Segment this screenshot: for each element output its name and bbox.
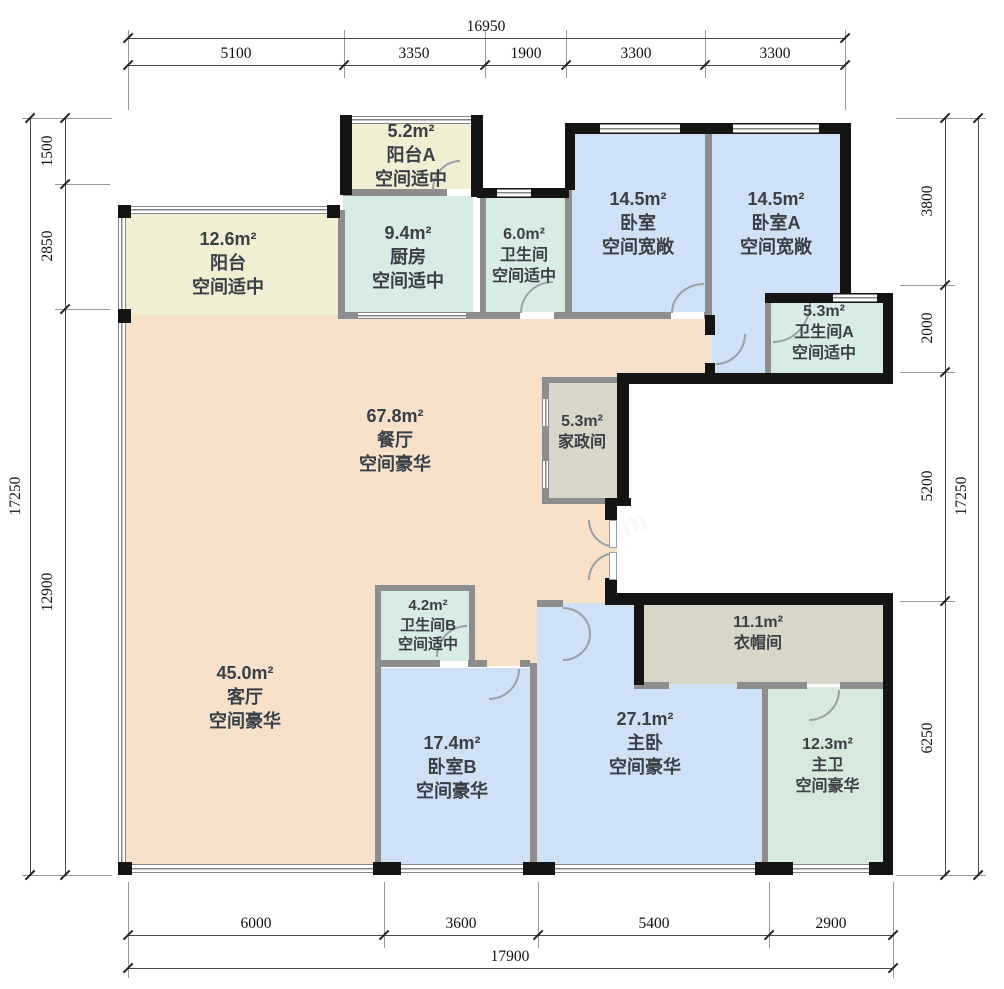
dim-segment: 2000 <box>919 296 937 360</box>
dim-segment: 3300 <box>743 45 807 63</box>
dim-segment: 3600 <box>429 915 493 933</box>
dimension-line <box>65 118 66 875</box>
room-name: 客厅 <box>165 686 325 710</box>
wall-segment <box>375 585 475 591</box>
room-label-kitchen: 9.4m² 厨房 空间适中 <box>338 222 478 293</box>
extension-line <box>384 882 385 948</box>
room-area: 5.3m² <box>532 412 632 433</box>
door-opening <box>520 312 554 319</box>
wall-segment <box>375 660 440 667</box>
dimension-line <box>30 118 31 875</box>
room-desc: 空间适中 <box>368 635 488 655</box>
room-area: 12.3m² <box>760 735 895 756</box>
dim-segment: 3800 <box>919 169 937 233</box>
dim-segment: 5400 <box>622 915 686 933</box>
extension-line <box>845 30 846 110</box>
window <box>131 206 327 214</box>
dim-total-bottom: 17900 <box>478 948 542 966</box>
room-desc: 空间豪华 <box>315 453 475 477</box>
room-area: 5.2m² <box>340 120 482 144</box>
room-area: 4.2m² <box>368 596 488 616</box>
wall-post <box>869 862 893 875</box>
room-label-bedroom-b: 17.4m² 卧室B 空间豪华 <box>382 732 522 803</box>
room-label-balcony-a: 5.2m² 阳台A 空间适中 <box>340 120 482 191</box>
wall-segment <box>605 578 617 605</box>
room-name: 餐厅 <box>315 429 475 453</box>
extension-line <box>769 882 770 948</box>
window <box>118 218 126 309</box>
room-label-living: 45.0m² 客厅 空间豪华 <box>165 662 325 733</box>
window <box>542 461 549 488</box>
room-label-balcony: 12.6m² 阳台 空间适中 <box>128 228 328 299</box>
wall-segment <box>705 363 715 377</box>
room-desc: 空间豪华 <box>760 777 895 798</box>
wall-segment <box>468 660 487 667</box>
wall-post <box>755 862 793 875</box>
room-name: 卫生间A <box>764 323 884 344</box>
room-desc: 空间宽敞 <box>706 236 846 260</box>
room-label-housekeeping: 5.3m² 家政间 <box>532 412 632 454</box>
wall-segment <box>840 682 883 689</box>
door-opening <box>671 312 704 319</box>
room-label-cloakroom: 11.1m² 衣帽间 <box>698 613 818 655</box>
window <box>497 189 531 197</box>
wall-post <box>118 862 132 875</box>
room-label-bedroom-a: 14.5m² 卧室A 空间宽敞 <box>706 188 846 259</box>
wall-segment <box>542 377 622 383</box>
window <box>600 124 680 133</box>
room-name: 卧室 <box>568 212 708 236</box>
entry-door-leaf <box>609 552 617 580</box>
dim-total-right: 17250 <box>953 464 971 528</box>
dimension-line <box>128 38 845 39</box>
dimension-line <box>128 935 893 936</box>
room-area: 11.1m² <box>698 613 818 634</box>
extension-line <box>900 372 955 373</box>
dim-segment: 5200 <box>919 454 937 518</box>
room-desc: 空间宽敞 <box>568 236 708 260</box>
wall-segment <box>530 663 537 868</box>
room-label-master-bathroom: 12.3m² 主卫 空间豪华 <box>760 735 895 797</box>
room-name: 卧室A <box>706 212 846 236</box>
room-name: 阳台 <box>128 252 328 276</box>
wall-segment <box>883 293 893 383</box>
window <box>733 124 819 133</box>
extension-line <box>893 882 894 978</box>
room-label-bedroom: 14.5m² 卧室 空间宽敞 <box>568 188 708 259</box>
room-name: 卫生间B <box>368 616 488 636</box>
room-label-dining: 67.8m² 餐厅 空间豪华 <box>315 405 475 476</box>
dim-segment: 2900 <box>799 915 863 933</box>
sliding-door <box>358 312 466 319</box>
dimension-line <box>945 118 946 875</box>
dim-segment: 1900 <box>494 45 558 63</box>
extension-line <box>22 875 112 876</box>
wall-post <box>118 309 131 323</box>
wall-post <box>523 862 555 875</box>
window <box>132 864 373 873</box>
wall-post <box>118 205 131 218</box>
extension-line <box>900 285 955 286</box>
window <box>118 323 126 862</box>
wall-segment <box>537 600 563 607</box>
dim-total-top: 16950 <box>454 18 518 36</box>
dimension-line <box>128 968 893 969</box>
room-label-bathroom-b: 4.2m² 卫生间B 空间适中 <box>368 596 488 655</box>
dim-segment: 2850 <box>39 214 57 278</box>
wall-segment <box>737 682 807 689</box>
room-desc: 空间豪华 <box>575 756 715 780</box>
room-floor-living <box>124 600 378 868</box>
wall-segment <box>605 498 617 520</box>
extension-line <box>128 30 129 110</box>
room-name: 厨房 <box>338 246 478 270</box>
room-desc: 空间适中 <box>464 267 584 288</box>
room-label-bathroom-a: 5.3m² 卫生间A 空间适中 <box>764 302 884 364</box>
dim-total-left: 17250 <box>7 464 25 528</box>
extension-line <box>900 601 955 602</box>
wall-segment <box>883 593 893 875</box>
room-area: 12.6m² <box>128 228 328 252</box>
window <box>401 864 523 873</box>
room-area: 27.1m² <box>575 708 715 732</box>
room-floor-dining-1 <box>124 315 712 375</box>
wall-segment <box>520 660 530 667</box>
dim-segment: 5100 <box>204 45 268 63</box>
room-name: 衣帽间 <box>698 634 818 655</box>
wall-segment <box>634 593 644 685</box>
window <box>555 864 755 873</box>
extension-line <box>538 882 539 948</box>
room-area: 17.4m² <box>382 732 522 756</box>
room-name: 主卫 <box>760 756 895 777</box>
wall-post <box>373 862 401 875</box>
floor-plan-canvas: 房天下 fang.com 房天下 fang.com 房天下 fang.com 房… <box>0 0 1004 989</box>
dim-segment: 6250 <box>919 706 937 770</box>
window <box>793 864 869 873</box>
dim-segment: 1500 <box>39 119 57 183</box>
dim-segment: 12900 <box>39 560 57 624</box>
room-area: 45.0m² <box>165 662 325 686</box>
room-desc: 空间适中 <box>128 276 328 300</box>
wall-segment <box>705 315 715 335</box>
room-area: 14.5m² <box>706 188 846 212</box>
entry-door-leaf <box>609 520 617 548</box>
room-desc: 空间豪华 <box>165 710 325 734</box>
room-area: 5.3m² <box>764 302 884 323</box>
dim-segment: 6000 <box>224 915 288 933</box>
room-name: 阳台A <box>340 144 482 168</box>
room-desc: 空间适中 <box>340 168 482 192</box>
room-name: 主卧 <box>575 732 715 756</box>
room-desc: 空间豪华 <box>382 780 522 804</box>
room-desc: 空间适中 <box>764 344 884 365</box>
wall-segment <box>634 593 893 605</box>
room-name: 卧室B <box>382 756 522 780</box>
room-area: 67.8m² <box>315 405 475 429</box>
room-label-bathroom: 6.0m² 卫生间 空间适中 <box>464 225 584 287</box>
dimension-line <box>128 65 845 66</box>
dim-segment: 3350 <box>382 45 446 63</box>
room-area: 6.0m² <box>464 225 584 246</box>
dimension-line <box>978 118 979 875</box>
wall-post <box>327 205 340 218</box>
room-name: 卫生间 <box>464 246 584 267</box>
extension-line <box>22 118 112 119</box>
room-name: 家政间 <box>532 433 632 454</box>
dim-segment: 3300 <box>604 45 668 63</box>
room-area: 9.4m² <box>338 222 478 246</box>
wall-segment <box>617 373 893 384</box>
room-desc: 空间适中 <box>338 270 478 294</box>
window <box>833 294 877 302</box>
room-label-master-bedroom: 27.1m² 主卧 空间豪华 <box>575 708 715 779</box>
extension-line <box>128 882 129 978</box>
room-area: 14.5m² <box>568 188 708 212</box>
